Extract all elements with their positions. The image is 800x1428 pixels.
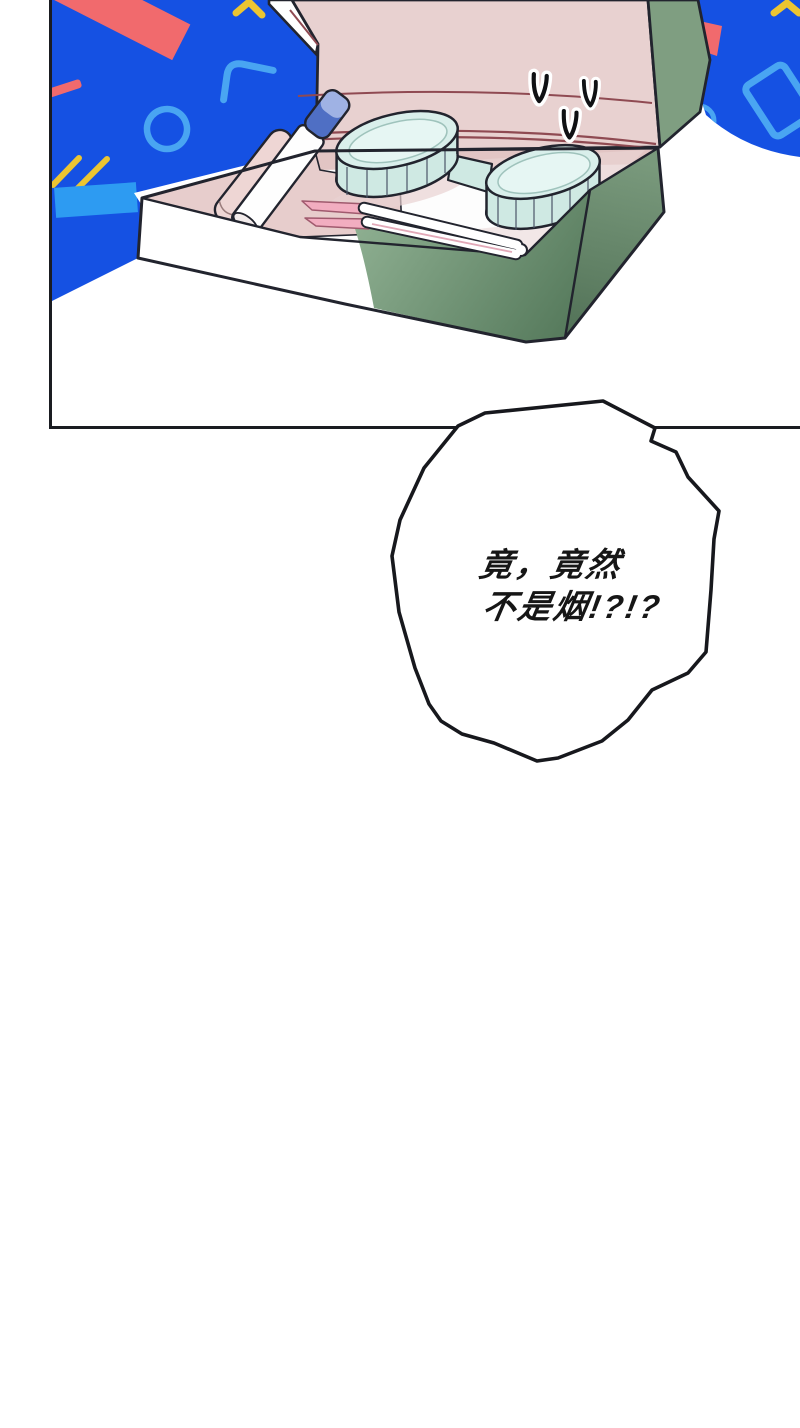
azure-rectangle <box>54 182 138 218</box>
bubble-line-2: 不是烟!?!? <box>480 589 665 626</box>
comic-artwork: 竟，竟然 不是烟!?!? <box>0 0 800 800</box>
bubble-line-1: 竟，竟然 <box>477 547 628 584</box>
lid-interior <box>292 0 660 151</box>
comic-page: { "page": { "type": "comic-panel-page", … <box>0 0 800 1428</box>
lid-green-flap <box>648 0 710 147</box>
comic-panel <box>30 0 800 342</box>
